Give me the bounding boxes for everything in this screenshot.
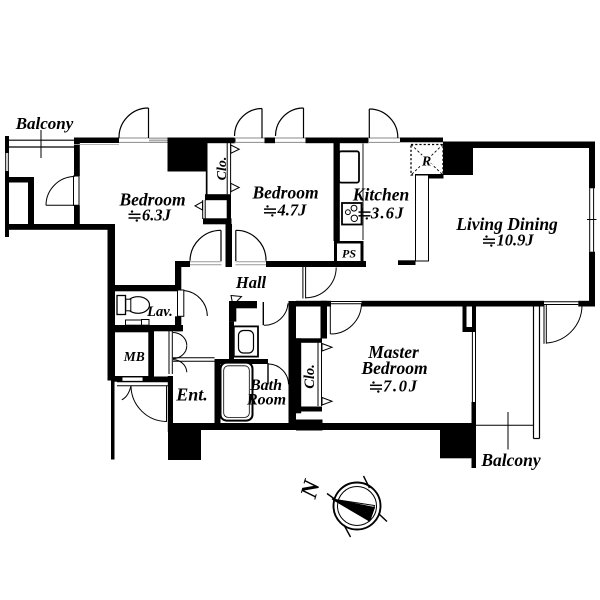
svg-text:R: R: [421, 155, 431, 170]
svg-text:Ent.: Ent.: [175, 385, 208, 405]
svg-text:MB: MB: [123, 349, 145, 364]
svg-text:Hall: Hall: [235, 273, 267, 292]
svg-text:Bedroom: Bedroom: [360, 358, 427, 378]
svg-text:3.6J: 3.6J: [370, 203, 405, 222]
svg-text:4.7J: 4.7J: [277, 200, 308, 219]
svg-text:Clo.: Clo.: [302, 364, 318, 389]
svg-text:6.3J: 6.3J: [142, 206, 172, 225]
svg-text:7.0J: 7.0J: [383, 377, 419, 396]
svg-text:Clo.: Clo.: [215, 157, 230, 181]
svg-text:Kitchen: Kitchen: [352, 185, 409, 205]
svg-text:Balcony: Balcony: [480, 450, 541, 470]
svg-text:Balcony: Balcony: [15, 114, 74, 133]
svg-text:Room: Room: [246, 392, 286, 409]
svg-text:Lav.: Lav.: [146, 304, 173, 320]
svg-text:PS: PS: [342, 246, 356, 260]
svg-text:10.9J: 10.9J: [497, 231, 535, 250]
